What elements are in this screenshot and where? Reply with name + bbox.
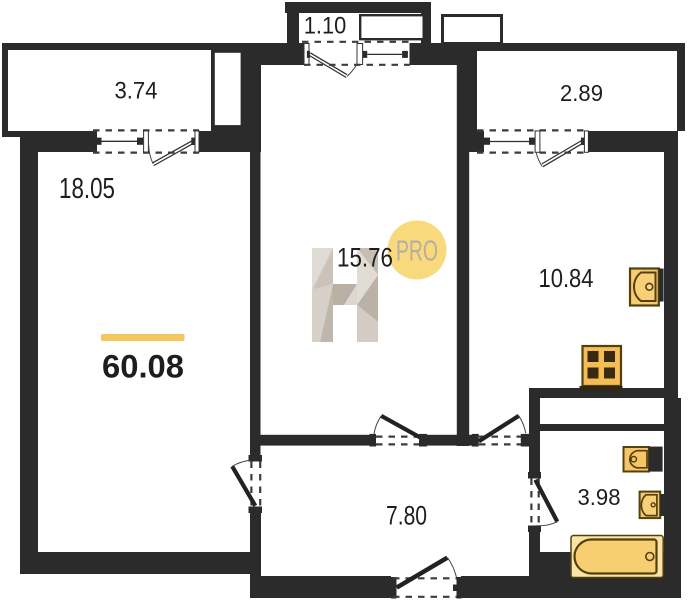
svg-text:3.74: 3.74 <box>115 78 158 105</box>
svg-text:PRO: PRO <box>396 236 438 268</box>
svg-text:7.80: 7.80 <box>386 501 427 531</box>
svg-text:10.84: 10.84 <box>539 263 594 293</box>
svg-text:2.89: 2.89 <box>560 80 603 106</box>
svg-text:1.10: 1.10 <box>304 13 347 40</box>
svg-text:18.05: 18.05 <box>59 173 115 205</box>
svg-text:60.08: 60.08 <box>102 349 184 385</box>
svg-text:15.76: 15.76 <box>337 243 393 273</box>
svg-text:3.98: 3.98 <box>578 484 621 510</box>
